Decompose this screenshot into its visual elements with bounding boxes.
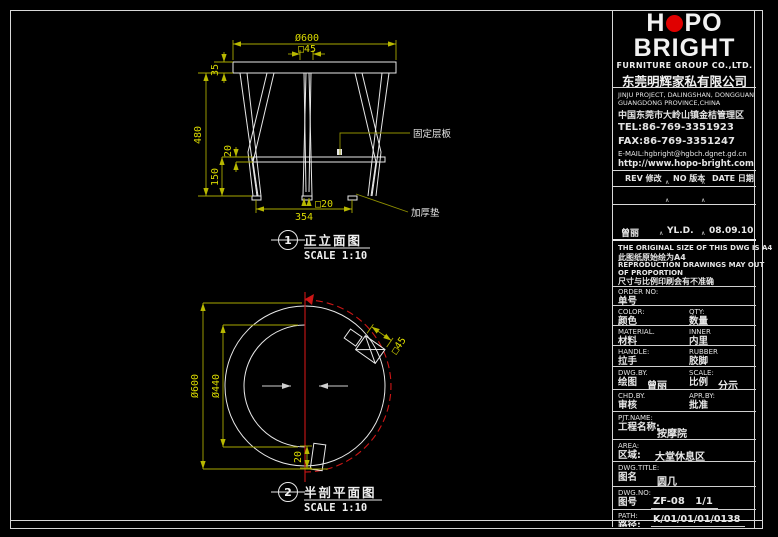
qty-col: QTY: 数量: [689, 308, 708, 326]
field-row-order: ORDER NO: 单号: [613, 286, 756, 306]
scale-label-cn: 比例: [689, 377, 714, 388]
address-en-2: GUANGDONG PROVINCE,CHINA: [618, 99, 720, 107]
qty-label-cn: 数量: [689, 316, 708, 326]
handle-label-en: HANDLE:: [618, 348, 756, 356]
dwgby-value: 曾丽: [645, 377, 672, 390]
field-row-dwgby-scale: DWG.BY. 绘图 曾丽 SCALE: 比例 分示: [613, 368, 756, 390]
rev-table-bottom-line: [613, 239, 756, 241]
rev-row-line: [613, 204, 756, 205]
field-row-dwg-no: DWG.NO: 图号 ZF-08 1/1: [613, 488, 756, 510]
address-cn: 中国东莞市大岭山镇金桔管理区: [618, 108, 744, 121]
title-label-en: DWG.TITLE:: [618, 464, 756, 472]
fax: FAX:86-769-3351247: [618, 136, 735, 147]
field-row-path: PATH: 路径: K/01/01/01/0138: [613, 511, 756, 527]
color-label-en: COLOR:: [618, 308, 756, 316]
rev-header-date: DATE 日期: [712, 173, 754, 184]
title-block: HPO BRIGHT FURNITURE GROUP CO.,LTD. 东莞明辉…: [612, 10, 756, 527]
field-row-project: PJT.NAME: 工程名称: 按摩院: [613, 413, 756, 440]
phone: TEL:86-769-3351923: [618, 122, 734, 133]
brand-line2: BRIGHT: [613, 36, 756, 61]
rev-caret: ∧: [659, 231, 663, 237]
color-label-cn: 颜色: [618, 316, 756, 326]
chd-label-cn: 审核: [618, 400, 756, 411]
field-row-handle-rubber: HANDLE: 拉手 RUBBER 胶脚: [613, 347, 756, 367]
rev-caret: ∧: [701, 231, 705, 237]
rubber-label-cn: 胶脚: [689, 356, 718, 367]
material-label-cn: 材料: [618, 336, 756, 346]
title-value: 圆几: [655, 473, 682, 487]
order-label-en: ORDER NO:: [618, 288, 756, 296]
pjt-value: 按摩院: [655, 425, 692, 440]
email: E-MAIL:hgbright@hgbch.dgnet.gd.cn: [618, 150, 747, 158]
divider: [613, 170, 756, 171]
apr-label-cn: 批准: [689, 400, 715, 411]
path-value: K/01/01/01/0138: [651, 514, 745, 527]
note-line-1: THE ORIGINAL SIZE OF THIS DWG IS A4: [618, 244, 772, 252]
field-row-material-inner: MATERIAL. 材料 INNER 内里: [613, 327, 756, 346]
website: http://www.hopo-bright.com: [618, 159, 754, 169]
inner-label-cn: 内里: [689, 336, 711, 346]
handle-label-cn: 拉手: [618, 356, 756, 367]
scale-label-en: SCALE:: [689, 369, 714, 377]
no-pages: 1/1: [695, 496, 713, 507]
rev-entry-name: 曾丽: [621, 226, 639, 239]
scale-col: SCALE: 比例: [689, 369, 714, 388]
brand-line1: HPO: [613, 11, 756, 36]
no-value: ZF-08: [653, 496, 685, 507]
apr-label-en: APR.BY:: [689, 392, 715, 400]
area-value: 大堂休息区: [653, 448, 710, 462]
rev-header-rev: REV 修改: [625, 173, 662, 184]
note-line-3: REPRODUCTION DRAWINGS MAY OUT: [618, 261, 764, 269]
rubber-label-en: RUBBER: [689, 348, 718, 356]
company-subtitle: FURNITURE GROUP CO.,LTD.: [613, 61, 756, 70]
field-row-chd-apr: CHD.BY. 审核 APR.BY: 批准: [613, 391, 756, 412]
rubber-col: RUBBER 胶脚: [689, 348, 718, 367]
scale-value: 分示: [716, 377, 743, 390]
inner-col: INNER 内里: [689, 328, 711, 346]
inner-label-en: INNER: [689, 328, 711, 336]
brand-h: H: [646, 9, 665, 37]
address-en-1: JINJU PROJECT, DALINGSHAN, DONGGUAN: [618, 91, 754, 99]
rev-row-line: [613, 186, 756, 187]
field-row-area: AREA: 区域: 大堂休息区: [613, 441, 756, 462]
qty-label-en: QTY:: [689, 308, 708, 316]
no-value-group: ZF-08 1/1: [651, 496, 718, 509]
apr-col: APR.BY: 批准: [689, 392, 715, 411]
brand-po: PO: [684, 9, 722, 37]
cad-sheet: Ø600 □45 35 480: [0, 0, 778, 537]
dwgby-label-en: DWG.BY.: [618, 369, 756, 377]
pjt-label-en: PJT.NAME:: [618, 414, 756, 422]
order-label-cn: 单号: [618, 296, 756, 306]
field-row-dwg-title: DWG.TITLE: 图名 圆几: [613, 463, 756, 487]
brand-dot-icon: [666, 15, 683, 32]
rev-entry-no: YL.D.: [667, 226, 694, 236]
chd-label-en: CHD.BY.: [618, 392, 756, 400]
title-label-cn: 图名: [618, 472, 756, 483]
material-label-en: MATERIAL.: [618, 328, 756, 336]
divider: [613, 87, 756, 88]
field-row-color-qty: COLOR: 颜色 QTY: 数量: [613, 307, 756, 326]
rev-entry-date: 08.09.10: [709, 226, 753, 236]
